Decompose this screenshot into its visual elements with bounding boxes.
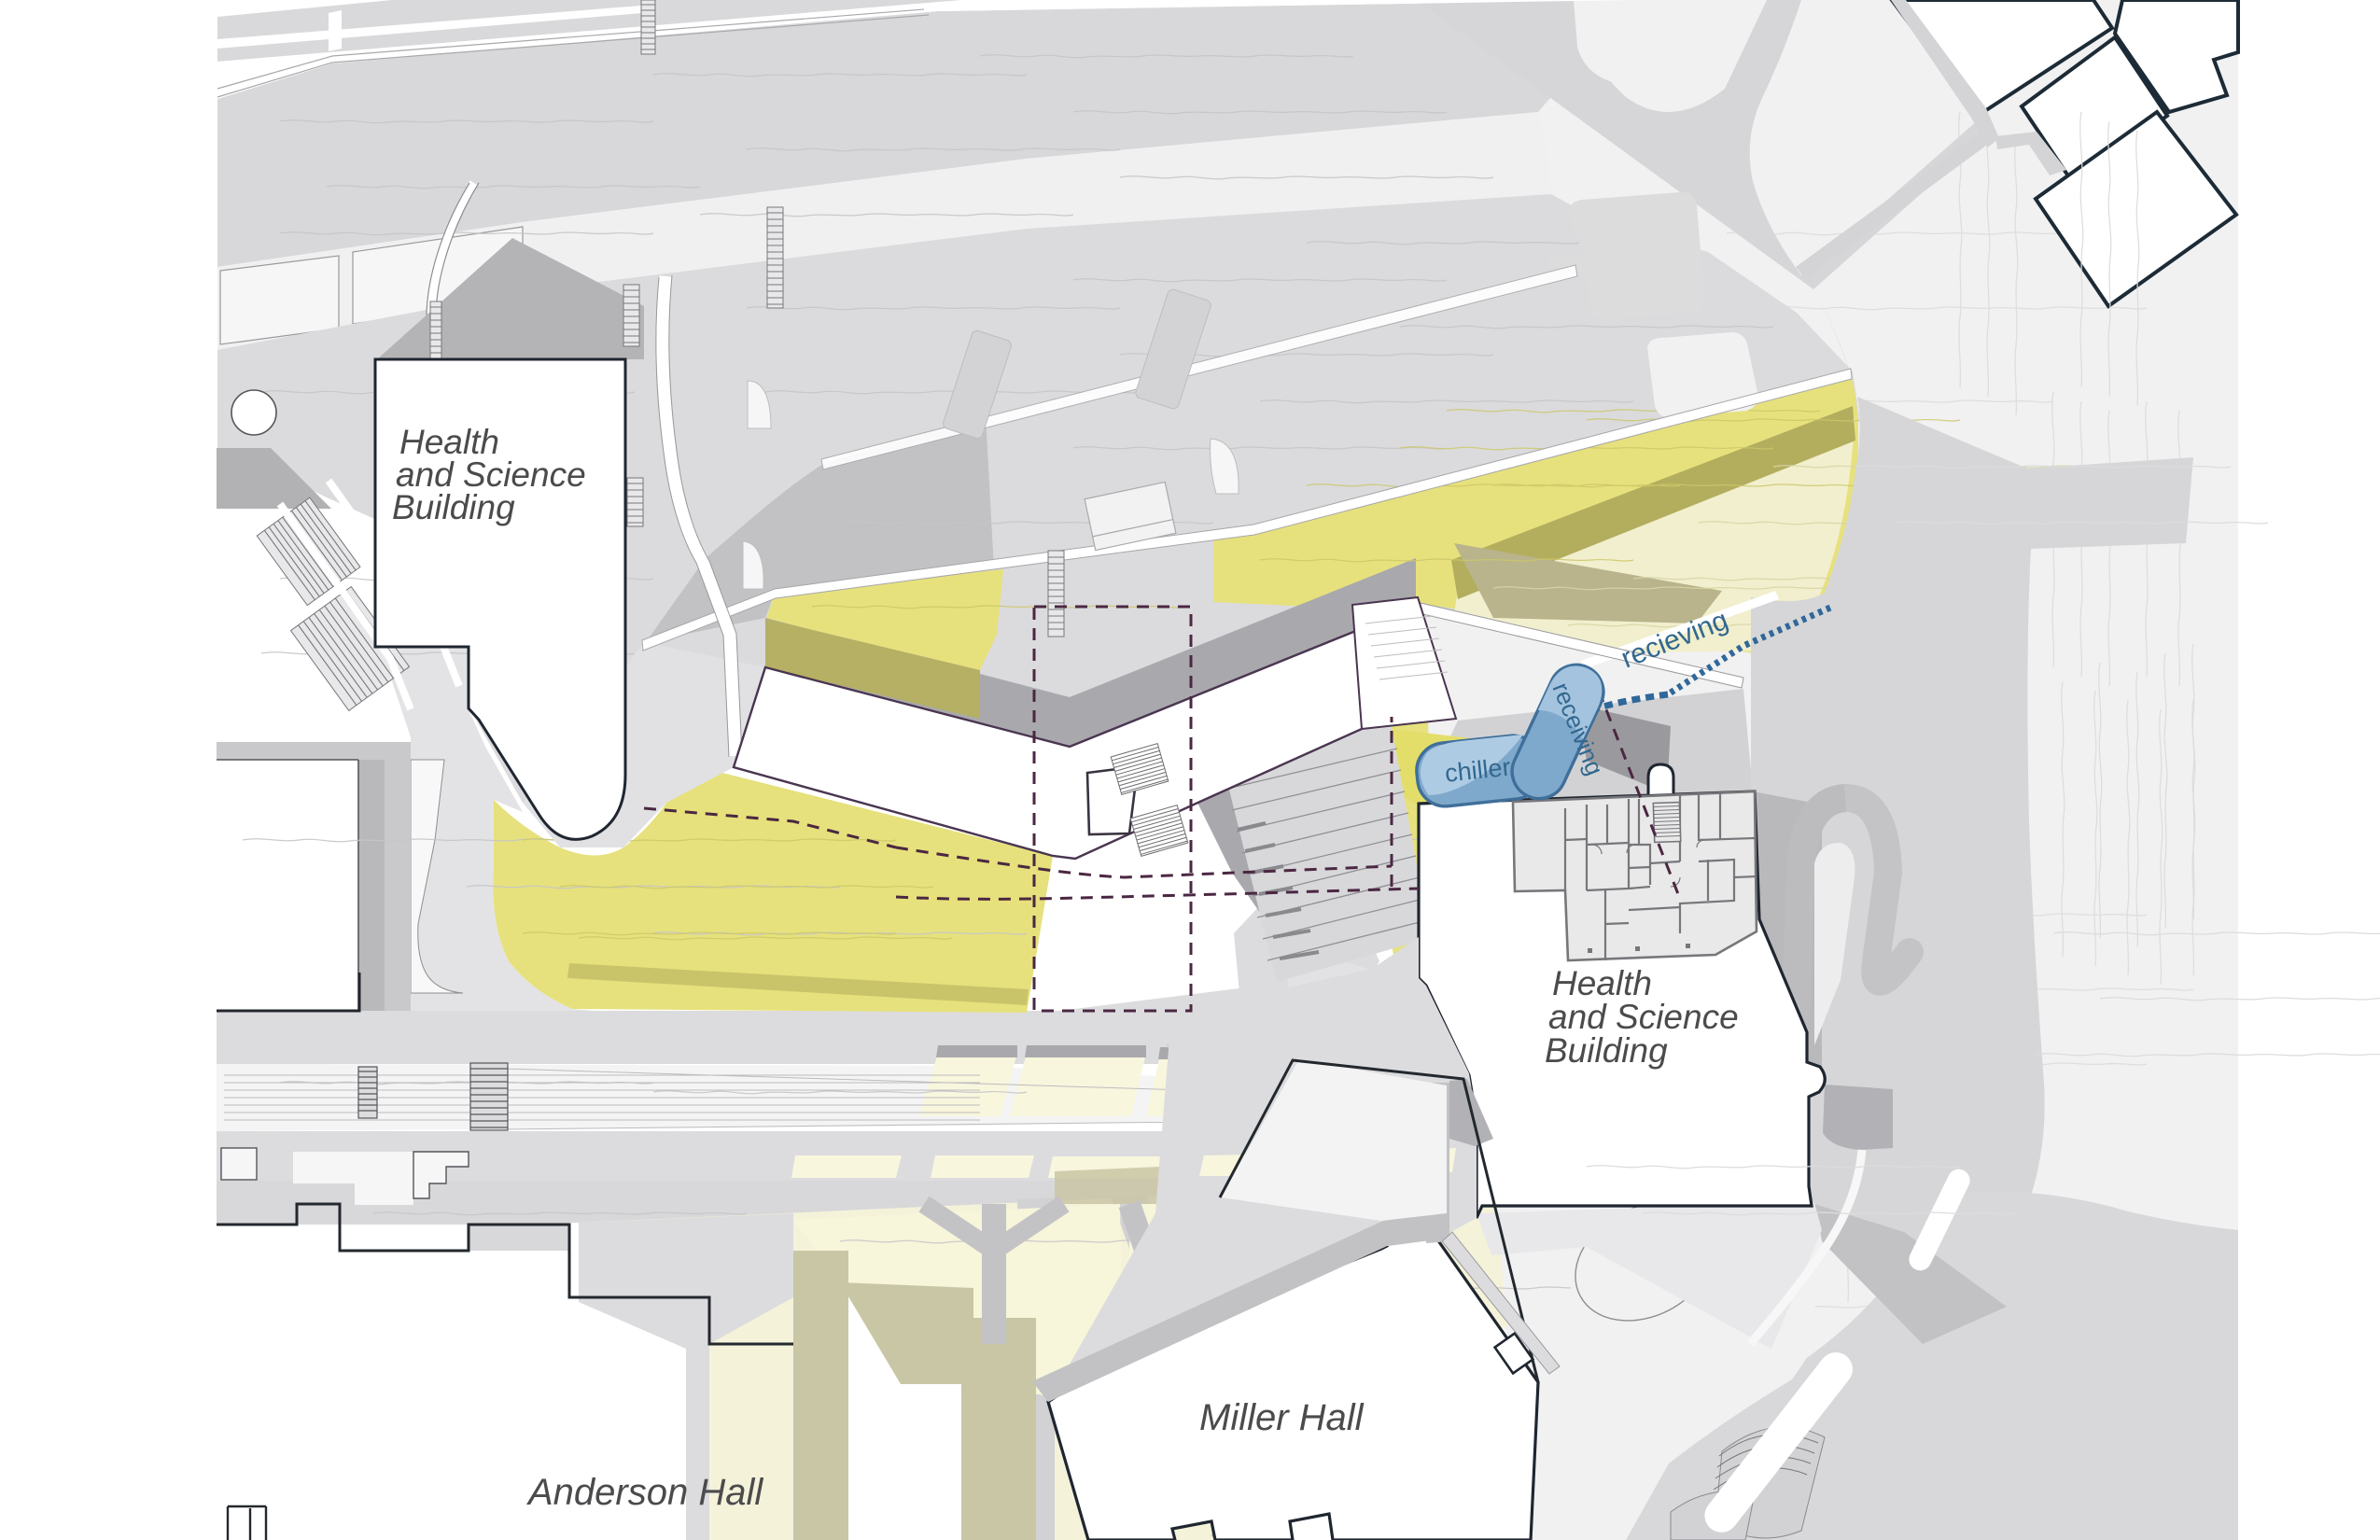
svg-text:Miller Hall: Miller Hall xyxy=(1199,1397,1365,1438)
svg-text:Health: Health xyxy=(1552,964,1652,1002)
svg-text:Building: Building xyxy=(392,488,515,526)
svg-text:Anderson Hall: Anderson Hall xyxy=(526,1472,763,1513)
svg-text:and Science: and Science xyxy=(1548,998,1739,1036)
svg-text:Building: Building xyxy=(1545,1031,1668,1070)
